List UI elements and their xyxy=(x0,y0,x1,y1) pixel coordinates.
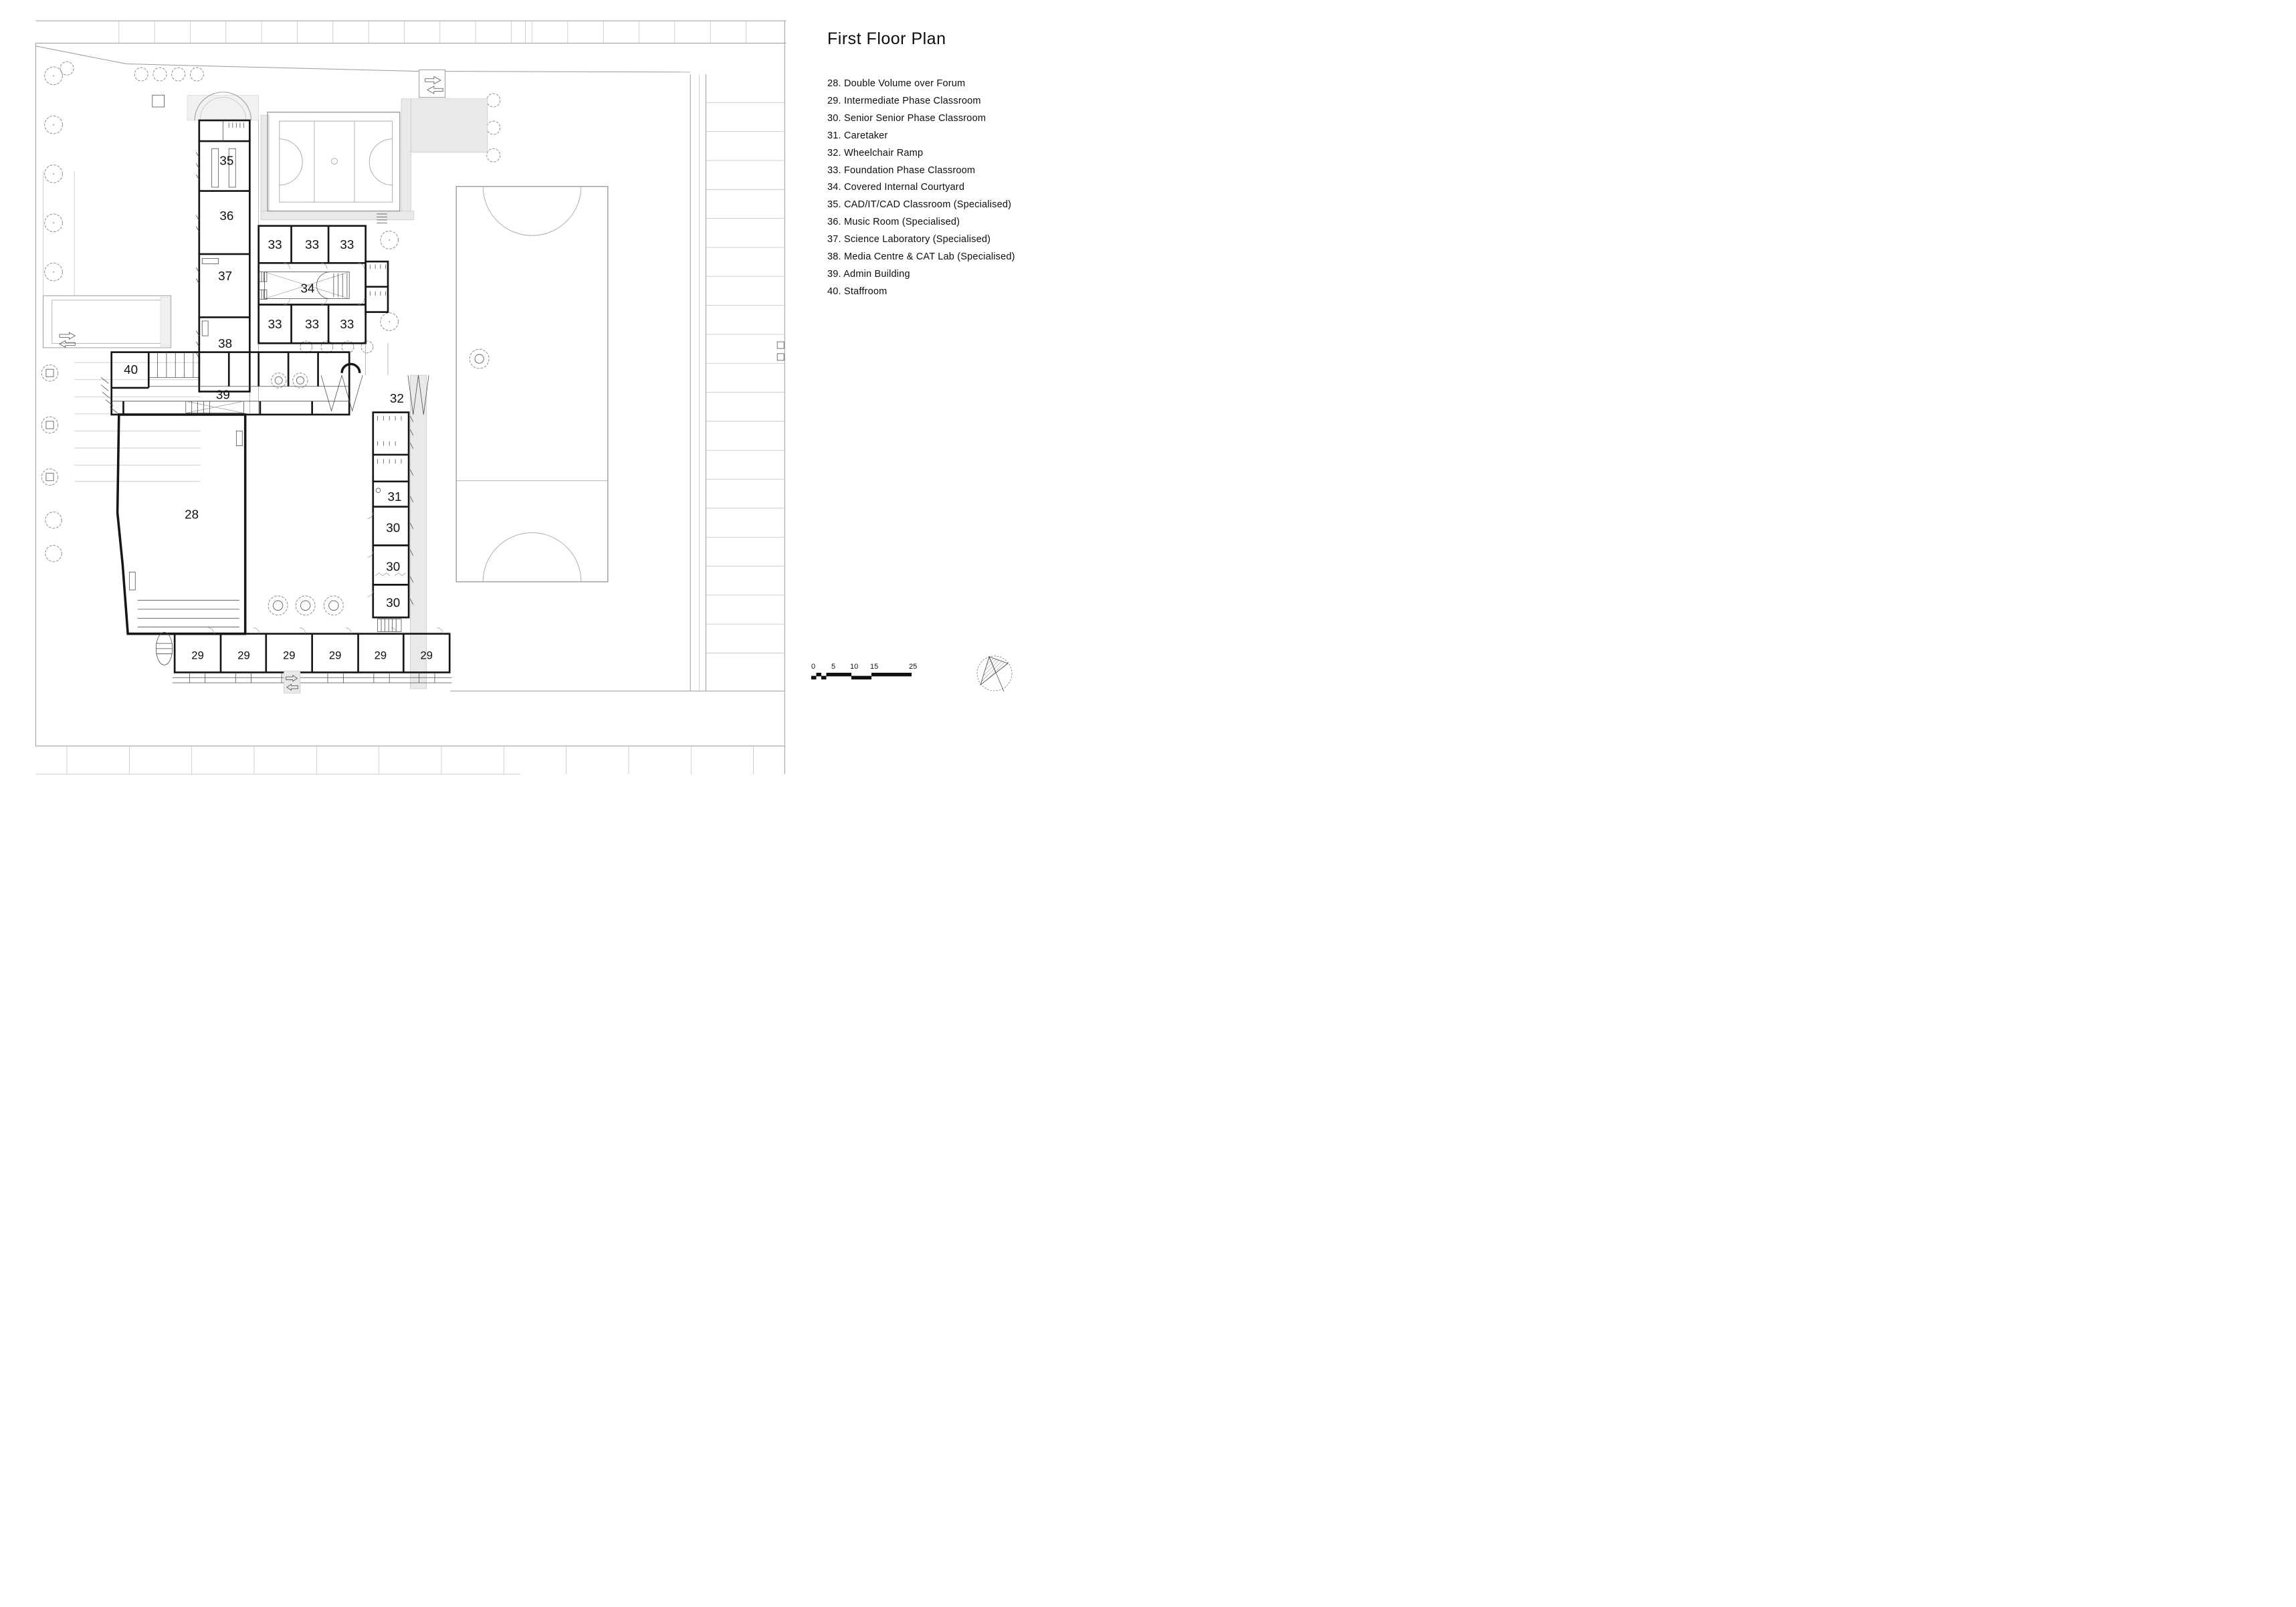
building-admin xyxy=(101,352,349,415)
room-label-30: 30 xyxy=(386,560,400,574)
legend-item-40: 40. Staffroom xyxy=(827,284,1108,301)
legend-item-29: 29. Intermediate Phase Classroom xyxy=(827,93,1108,110)
room-label-33: 33 xyxy=(305,238,319,252)
room-label-29: 29 xyxy=(421,649,433,661)
room-label-32: 32 xyxy=(390,392,404,406)
parking-right xyxy=(690,74,785,691)
room-label-29: 29 xyxy=(375,649,387,661)
room-label-38: 38 xyxy=(218,337,232,351)
room-label-30: 30 xyxy=(386,521,400,535)
legend-list: 28. Double Volume over Forum29. Intermed… xyxy=(827,76,1108,301)
scale-bar: 05101525 xyxy=(806,661,926,690)
scale-label-5: 5 xyxy=(831,663,835,671)
room-label-29: 29 xyxy=(191,649,204,661)
legend-item-30: 30. Senior Senior Phase Classroom xyxy=(827,110,1108,128)
room-label-34: 34 xyxy=(301,282,315,296)
legend-item-38: 38. Media Centre & CAT Lab (Specialised) xyxy=(827,249,1108,266)
room-label-37: 37 xyxy=(218,270,232,284)
scale-label-25: 25 xyxy=(909,663,917,671)
room-label-39: 39 xyxy=(216,389,230,403)
arrow-left-icon xyxy=(427,86,443,94)
room-label-29: 29 xyxy=(329,649,342,661)
room-label-33: 33 xyxy=(340,318,354,332)
legend-item-35: 35. CAD/IT/CAD Classroom (Specialised) xyxy=(827,197,1108,214)
gate-icon xyxy=(777,342,784,348)
legend-item-33: 33. Foundation Phase Classroom xyxy=(827,163,1108,180)
room-label-33: 33 xyxy=(268,238,282,252)
room-label-33: 33 xyxy=(340,238,354,252)
scale-label-0: 0 xyxy=(811,663,815,671)
legend-item-37: 37. Science Laboratory (Specialised) xyxy=(827,231,1108,249)
room-label-30: 30 xyxy=(386,597,400,611)
floor-plan-drawing: 3536373833333334333333403928323130303029… xyxy=(0,0,803,803)
arrow-box-bottom xyxy=(284,671,300,693)
legend-item-32: 32. Wheelchair Ramp xyxy=(827,145,1108,163)
room-label-31: 31 xyxy=(388,490,402,504)
scale-label-10: 10 xyxy=(850,663,858,671)
legend-item-28: 28. Double Volume over Forum xyxy=(827,76,1108,93)
arrow-right-icon xyxy=(425,76,441,84)
traffic-arrow-right-icon xyxy=(60,332,75,339)
arrow-box-top xyxy=(419,70,445,97)
room-label-33: 33 xyxy=(268,318,282,332)
parking-top xyxy=(119,21,746,43)
room-label-35: 35 xyxy=(219,154,233,169)
room-label-36: 36 xyxy=(219,209,233,223)
legend-item-36: 36. Music Room (Specialised) xyxy=(827,214,1108,231)
room-label-33: 33 xyxy=(305,318,319,332)
sports-field xyxy=(456,187,608,582)
entrance-drive xyxy=(43,171,201,481)
north-arrow-icon xyxy=(971,650,1018,697)
legend-item-39: 39. Admin Building xyxy=(827,266,1108,284)
page-title: First Floor Plan xyxy=(827,29,1108,49)
traffic-arrow-left-icon xyxy=(60,340,75,347)
legend-item-34: 34. Covered Internal Courtyard xyxy=(827,179,1108,197)
room-label-29: 29 xyxy=(283,649,296,661)
forum-hall xyxy=(118,415,245,634)
scale-label-15: 15 xyxy=(870,663,878,671)
room-label-29: 29 xyxy=(237,649,250,661)
legend-item-31: 31. Caretaker xyxy=(827,128,1108,145)
legend-panel: First Floor Plan 28. Double Volume over … xyxy=(827,29,1108,301)
room-label-28: 28 xyxy=(185,508,199,522)
room-label-40: 40 xyxy=(124,363,138,377)
first-floor-plan-sheet: 3536373833333334333333403928323130303029… xyxy=(0,0,1148,803)
parking-bottom xyxy=(67,746,754,774)
netball-court xyxy=(268,112,400,211)
